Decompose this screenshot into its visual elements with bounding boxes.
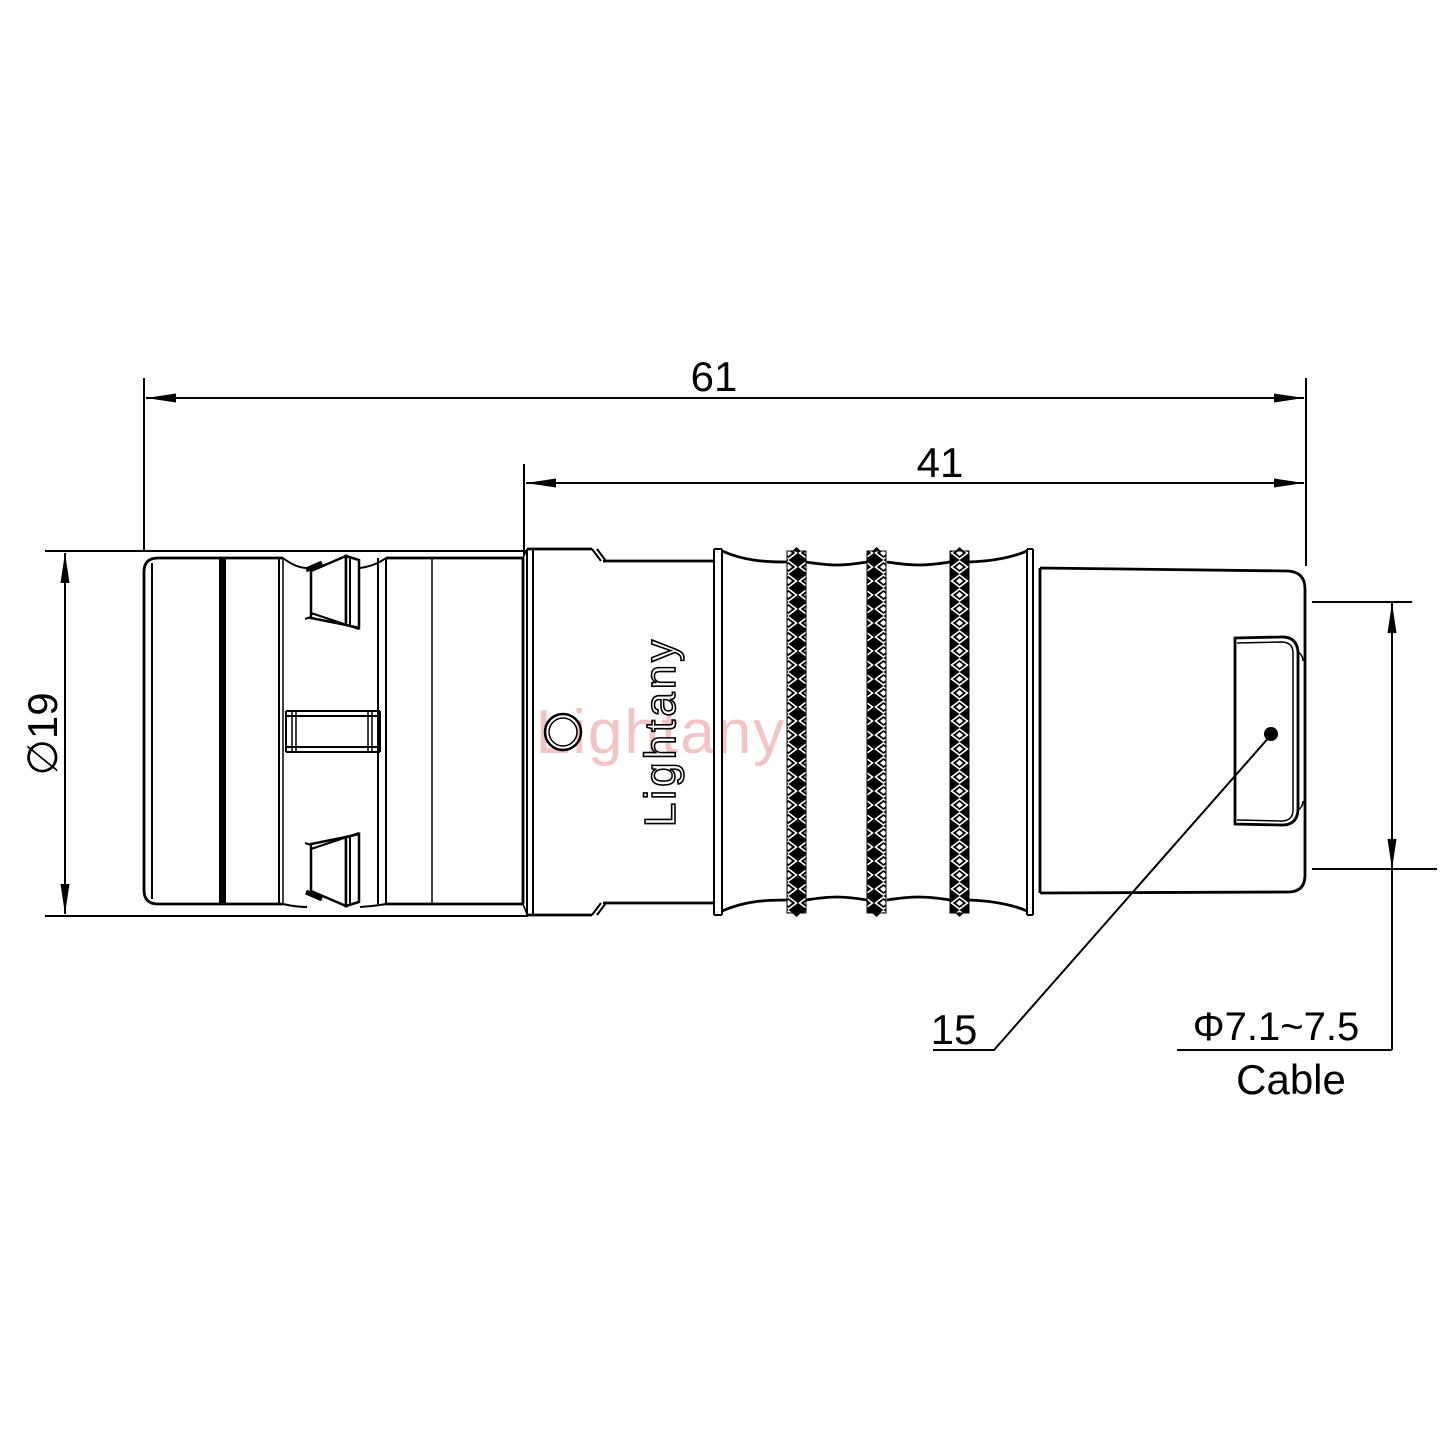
dim-61-label: 61 xyxy=(691,353,738,400)
knurl-band-2 xyxy=(867,547,886,917)
latch-window xyxy=(286,711,380,752)
drawing-canvas: Lightany xyxy=(0,0,1440,1440)
bayonet-pin-top xyxy=(305,556,359,629)
dim-dia19-label: ∅19 xyxy=(19,692,66,775)
connector-drawing-svg: Lightany xyxy=(0,0,1440,1440)
cable-diameter-label: Φ7.1~7.5 xyxy=(1193,1005,1359,1049)
brand-engraved: Lightany xyxy=(636,637,685,827)
dim-cable-diameter: Φ7.1~7.5 Cable xyxy=(1177,602,1437,1103)
cable-word-label: Cable xyxy=(1236,1056,1346,1103)
leader-dot xyxy=(1264,727,1278,741)
dim-rear-length: 41 xyxy=(524,439,1304,555)
dim-body-diameter: ∅19 xyxy=(19,551,528,916)
knurl-band-3 xyxy=(950,547,969,917)
knurl-band-1 xyxy=(787,547,806,917)
seal-band xyxy=(219,559,226,904)
dim-overall-length: 61 xyxy=(144,353,1306,566)
bayonet-pin-bottom xyxy=(305,833,359,906)
dim-41-label: 41 xyxy=(917,439,964,486)
coupling-nut-front xyxy=(144,556,523,907)
dim-15-label: 15 xyxy=(931,1006,978,1053)
